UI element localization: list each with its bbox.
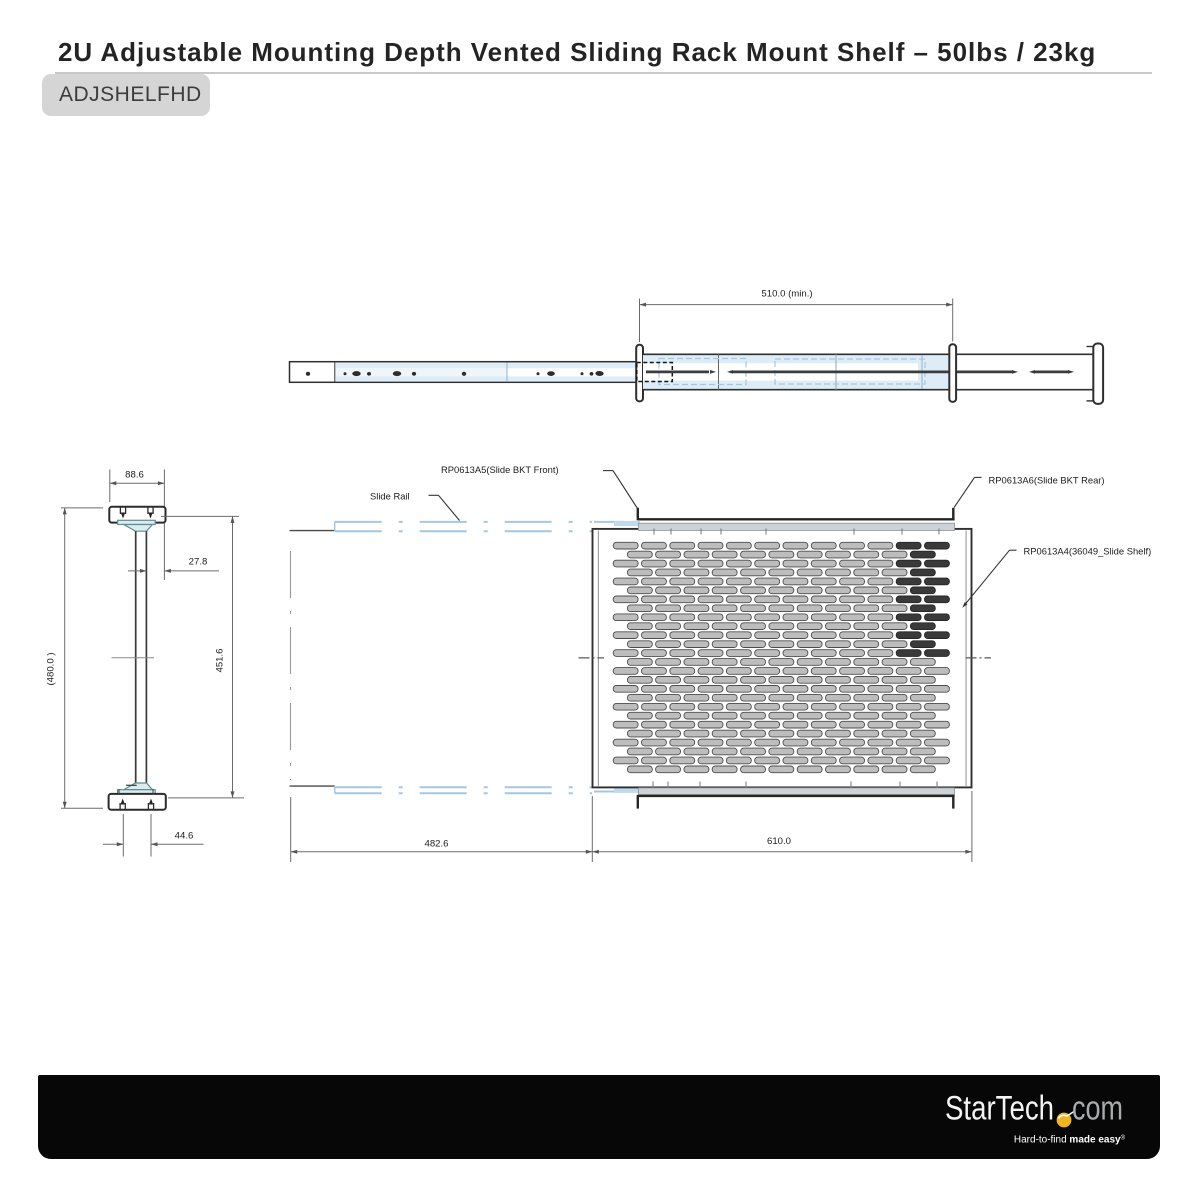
svg-text:RP0613A5(Slide BKT Front): RP0613A5(Slide BKT Front) [441, 464, 559, 475]
svg-text:510.0 (min.): 510.0 (min.) [761, 289, 812, 300]
svg-text:RP0613A4(36049_Slide Shelf): RP0613A4(36049_Slide Shelf) [1024, 546, 1152, 557]
svg-text:482.6: 482.6 [424, 839, 448, 850]
svg-text:27.8: 27.8 [189, 557, 208, 568]
svg-text:RP0613A6(Slide BKT Rear): RP0613A6(Slide BKT Rear) [989, 474, 1105, 485]
svg-text:88.6: 88.6 [125, 470, 144, 481]
svg-text:610.0: 610.0 [767, 836, 791, 847]
svg-text:451.6: 451.6 [215, 648, 226, 672]
svg-text:com: com [1072, 1090, 1123, 1128]
svg-text:StarTech: StarTech [945, 1090, 1054, 1128]
svg-text:(480.0 ): (480.0 ) [46, 652, 57, 685]
svg-text:Hard-to-find made easy®: Hard-to-find made easy® [1014, 1135, 1126, 1146]
svg-text:44.6: 44.6 [175, 831, 194, 842]
svg-text:Slide Rail: Slide Rail [370, 491, 410, 502]
